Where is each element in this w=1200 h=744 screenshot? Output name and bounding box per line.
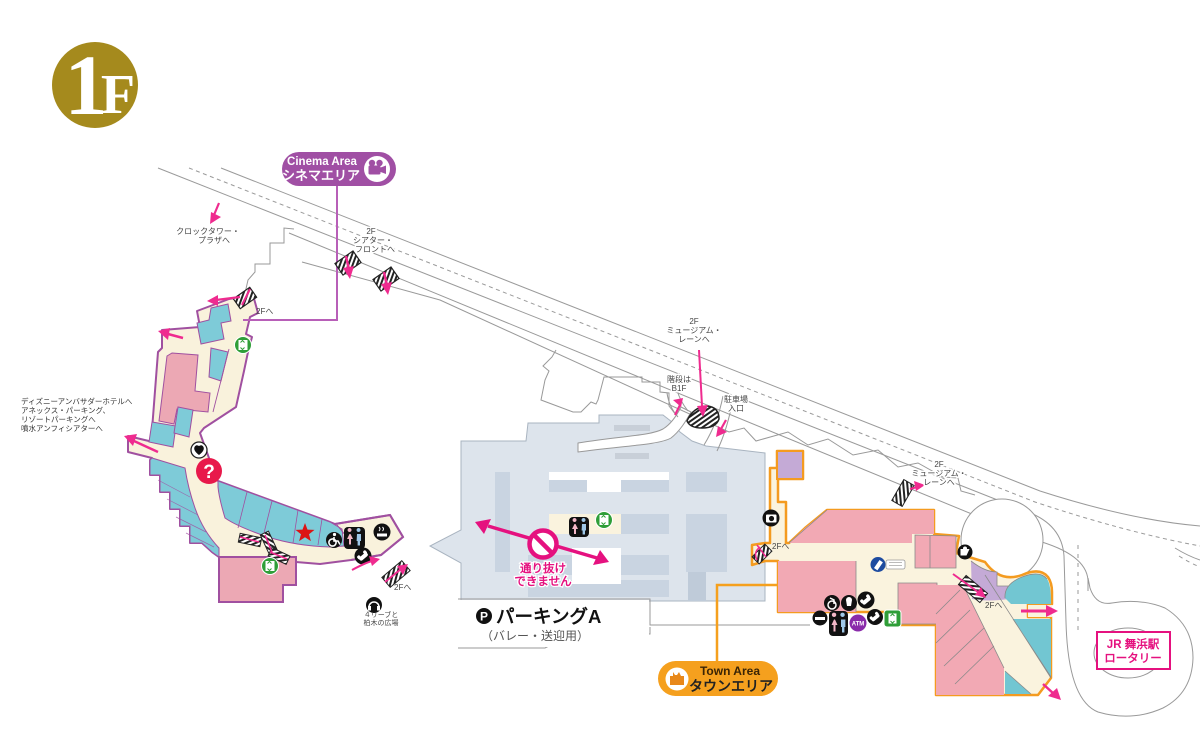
- svg-text:通り抜け: 通り抜け: [520, 561, 566, 575]
- svg-text:シネマエリア: シネマエリア: [282, 168, 360, 183]
- svg-text:タウンエリア: タウンエリア: [689, 678, 773, 694]
- svg-text:（バレー・送迎用）: （バレー・送迎用）: [481, 628, 589, 643]
- svg-text:2F: 2F: [934, 460, 943, 469]
- svg-text:2Fへ: 2Fへ: [985, 601, 1002, 610]
- svg-text:噴水アンフィシアターへ: 噴水アンフィシアターへ: [21, 423, 103, 433]
- svg-text:2Fへ: 2Fへ: [772, 542, 789, 551]
- svg-text:フロントへ: フロントへ: [355, 245, 395, 254]
- svg-text:リゾートパーキングへ: リゾートパーキングへ: [21, 414, 96, 424]
- svg-text:ミュージアム・: ミュージアム・: [911, 469, 966, 478]
- svg-text:ロータリー: ロータリー: [1104, 651, 1162, 665]
- svg-text:レーンへ: レーンへ: [923, 478, 955, 487]
- svg-text:階段は: 階段は: [667, 374, 691, 384]
- svg-text:ATM: ATM: [852, 622, 865, 628]
- svg-text:2Fへ: 2Fへ: [256, 307, 273, 316]
- svg-text:Cinema Area: Cinema Area: [287, 156, 357, 168]
- svg-text:シアター・: シアター・: [353, 236, 393, 245]
- svg-text:パーキングA: パーキングA: [496, 606, 601, 627]
- svg-text:駐車場: 駐車場: [724, 394, 748, 404]
- svg-text:柏木の広場: 柏木の広場: [364, 618, 399, 627]
- svg-text:2F: 2F: [366, 227, 375, 236]
- svg-text:レーンへ: レーンへ: [678, 335, 710, 344]
- svg-text:?: ?: [203, 462, 215, 483]
- svg-text:ミュージアム・: ミュージアム・: [666, 326, 721, 335]
- svg-text:B1F: B1F: [672, 384, 687, 393]
- svg-text:クロックタワー・: クロックタワー・: [176, 227, 240, 236]
- svg-text:2F: 2F: [689, 317, 698, 326]
- svg-text:2Fへ: 2Fへ: [394, 583, 411, 592]
- svg-text:入口: 入口: [728, 404, 744, 413]
- svg-text:P: P: [480, 610, 488, 624]
- svg-text:JR 舞浜駅: JR 舞浜駅: [1107, 637, 1160, 651]
- svg-text:４リーブと: ４リーブと: [364, 610, 399, 619]
- svg-text:アネックス・パーキング、: アネックス・パーキング、: [21, 405, 110, 415]
- svg-text:F: F: [101, 64, 135, 126]
- svg-text:ディズニーアンバサダーホテルへ: ディズニーアンバサダーホテルへ: [21, 396, 133, 406]
- svg-text:Town Area: Town Area: [700, 664, 760, 678]
- svg-text:プラザへ: プラザへ: [198, 236, 230, 245]
- svg-text:できません: できません: [514, 575, 572, 588]
